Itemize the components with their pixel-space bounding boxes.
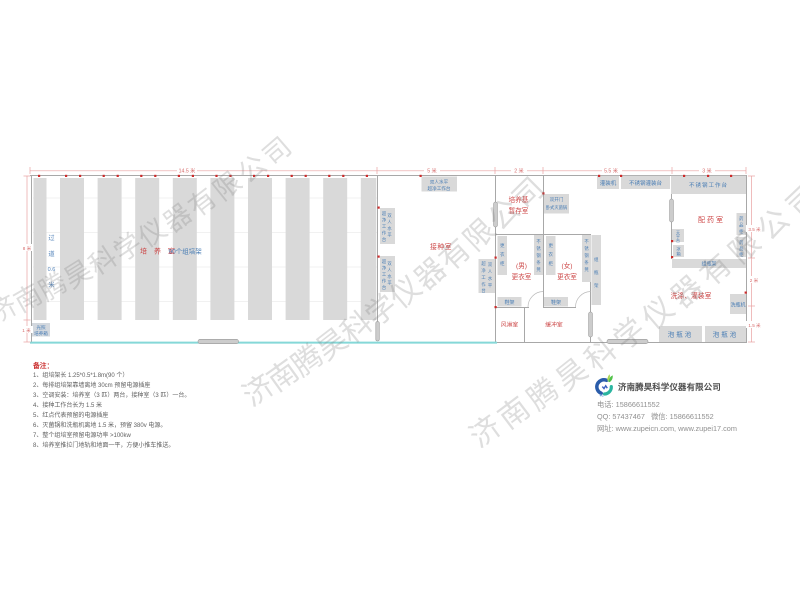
svg-text:培养箱: 培养箱 [34, 330, 48, 337]
svg-text:台: 台 [382, 236, 386, 243]
svg-text:组瓶架: 组瓶架 [701, 261, 716, 268]
svg-text:人: 人 [387, 220, 392, 225]
svg-text:人: 人 [387, 268, 392, 273]
svg-text:鞋架: 鞋架 [551, 299, 561, 306]
svg-text:台: 台 [382, 284, 386, 291]
svg-text:超: 超 [382, 258, 387, 265]
svg-text:泡瓶池: 泡瓶池 [713, 330, 739, 339]
svg-text:人: 人 [488, 269, 493, 274]
svg-text:1.5 米: 1.5 米 [748, 322, 761, 329]
svg-text:洗涤、灌装室: 洗涤、灌装室 [671, 291, 712, 300]
svg-text:90个组培架: 90个组培架 [169, 247, 203, 256]
svg-text:2 米: 2 米 [750, 277, 759, 284]
svg-text:米: 米 [48, 281, 54, 289]
svg-text:更衣室: 更衣室 [512, 272, 532, 281]
svg-text:药: 药 [739, 239, 744, 246]
svg-text:水: 水 [488, 275, 493, 281]
svg-text:不锈钢工作台: 不锈钢工作台 [689, 181, 728, 189]
svg-text:钢: 钢 [584, 252, 588, 259]
svg-text:柜: 柜 [739, 251, 744, 258]
svg-text:净: 净 [382, 265, 387, 272]
svg-text:台: 台 [676, 237, 680, 243]
svg-text:净: 净 [481, 267, 486, 274]
svg-text:作: 作 [481, 281, 486, 288]
svg-text:更衣室: 更衣室 [557, 272, 577, 281]
svg-text:缓冲室: 缓冲室 [545, 321, 563, 329]
svg-text:柜: 柜 [549, 260, 554, 267]
svg-text:14.5 米: 14.5 米 [179, 167, 197, 175]
svg-text:5 米: 5 米 [427, 167, 437, 175]
svg-text:柜: 柜 [500, 260, 505, 267]
svg-text:净: 净 [382, 217, 387, 224]
svg-text:药: 药 [739, 215, 744, 222]
svg-text:双开门: 双开门 [550, 196, 564, 203]
svg-text:卧式灭菌锅: 卧式灭菌锅 [546, 204, 568, 211]
svg-text:泡瓶池: 泡瓶池 [668, 330, 694, 339]
svg-text:8 米: 8 米 [23, 245, 32, 252]
svg-text:鞋架: 鞋架 [504, 299, 514, 306]
svg-text:柜: 柜 [739, 228, 744, 235]
svg-text:作: 作 [382, 230, 387, 237]
svg-text:(女): (女) [562, 261, 573, 270]
svg-text:钢: 钢 [536, 252, 540, 259]
svg-text:配药室: 配药室 [698, 215, 725, 224]
svg-text:凳: 凳 [536, 266, 541, 273]
svg-text:暂存室: 暂存室 [509, 206, 529, 215]
svg-text:风淋室: 风淋室 [501, 321, 519, 329]
svg-text:工: 工 [382, 224, 387, 229]
svg-text:水: 水 [387, 273, 392, 279]
svg-text:1 米: 1 米 [22, 327, 31, 334]
svg-text:过: 过 [48, 234, 54, 242]
svg-text:条: 条 [536, 259, 541, 265]
svg-text:光照: 光照 [36, 324, 46, 331]
svg-text:锈: 锈 [584, 245, 589, 252]
svg-text:工: 工 [481, 275, 486, 280]
svg-text:作: 作 [382, 278, 387, 285]
svg-text:超净工作台: 超净工作台 [428, 185, 451, 192]
svg-text:(男): (男) [516, 262, 527, 270]
svg-text:培养基: 培养基 [509, 195, 529, 204]
svg-text:超: 超 [382, 210, 387, 217]
svg-text:道: 道 [48, 250, 54, 258]
svg-text:2 米: 2 米 [514, 167, 524, 175]
svg-text:衣: 衣 [549, 251, 554, 258]
svg-text:台: 台 [481, 287, 485, 294]
svg-text:水: 水 [387, 225, 392, 231]
svg-text:3.5 米: 3.5 米 [748, 226, 761, 233]
svg-text:箱: 箱 [676, 251, 681, 258]
svg-text:衣: 衣 [500, 251, 505, 258]
svg-text:条: 条 [584, 259, 589, 265]
svg-text:组: 组 [594, 256, 599, 262]
svg-text:双人水平: 双人水平 [430, 179, 449, 186]
svg-text:锈: 锈 [536, 245, 541, 252]
svg-text:5.5 米: 5.5 米 [604, 167, 619, 175]
svg-text:灌装机: 灌装机 [600, 179, 617, 187]
svg-text:瓶: 瓶 [594, 269, 599, 276]
svg-text:0.6: 0.6 [48, 267, 56, 273]
svg-text:工: 工 [382, 272, 387, 277]
svg-text:3 米: 3 米 [702, 167, 712, 175]
svg-text:超: 超 [481, 260, 486, 267]
svg-text:不锈钢灌装台: 不锈钢灌装台 [629, 179, 663, 187]
svg-text:凳: 凳 [584, 266, 589, 273]
svg-text:接种室: 接种室 [430, 242, 452, 251]
svg-text:洗瓶机: 洗瓶机 [730, 302, 745, 309]
